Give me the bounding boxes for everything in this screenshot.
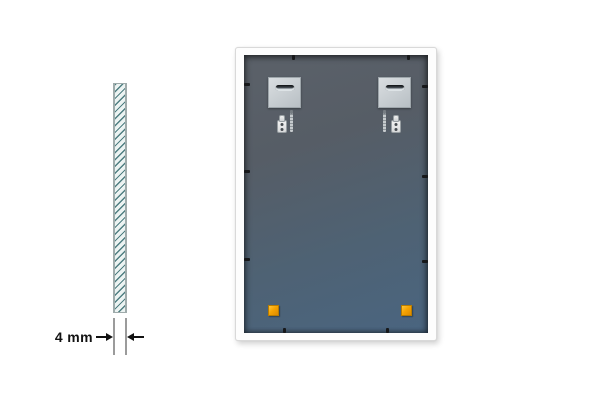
retainer-clip-icon — [386, 328, 389, 333]
frame-back-view — [235, 47, 437, 341]
retainer-clip-icon — [244, 170, 250, 173]
glass-cross-section — [113, 83, 127, 313]
retainer-clip-icon — [422, 85, 428, 88]
extension-line-left — [113, 318, 115, 355]
corner-pad-left — [268, 305, 279, 316]
arrow-right-icon — [96, 336, 106, 338]
corner-pad-right — [401, 305, 412, 316]
keyhole-slot-icon — [385, 85, 404, 91]
product-diagram: 4 mm — [0, 0, 600, 400]
d-ring-bracket-icon — [277, 120, 287, 133]
back-panel — [244, 55, 428, 333]
retainer-clip-icon — [292, 55, 295, 60]
retainer-clip-icon — [422, 175, 428, 178]
keyhole-slot-icon — [275, 85, 294, 91]
retainer-clip-icon — [422, 260, 428, 263]
retainer-clip-icon — [244, 83, 250, 86]
retainer-clip-icon — [407, 55, 410, 60]
d-ring-bracket-icon — [391, 120, 401, 133]
retainer-clip-icon — [283, 328, 286, 333]
thickness-label: 4 mm — [40, 329, 93, 345]
arrow-left-icon — [134, 336, 144, 338]
hanging-plate-left — [268, 77, 301, 108]
retainer-clip-icon — [244, 258, 250, 261]
screw-icon — [290, 111, 293, 132]
hanging-plate-right — [378, 77, 411, 108]
screw-icon — [383, 111, 386, 132]
